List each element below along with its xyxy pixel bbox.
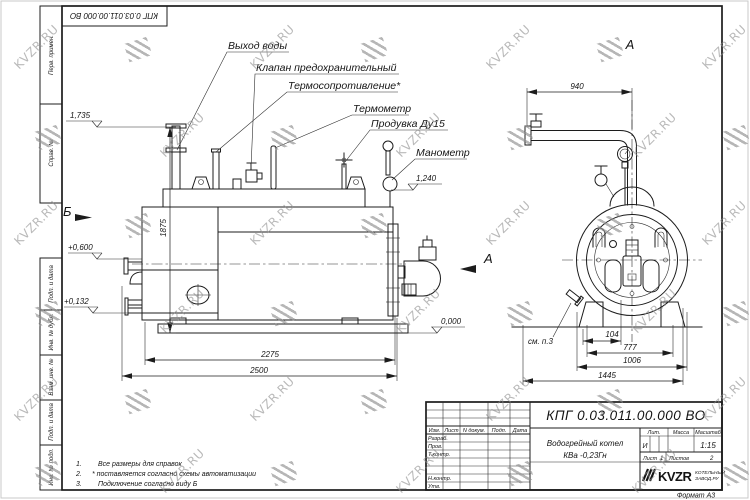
- elev-1240: 1,240: [416, 174, 437, 183]
- callout-thermometer: Термометр: [353, 103, 411, 115]
- lit-label: Лит.: [647, 430, 661, 436]
- dim-2275: 2275: [260, 350, 279, 359]
- elev-0000: 0,000: [441, 317, 462, 326]
- strip-inv-dubl: Инв. № дубл.: [48, 314, 55, 351]
- product-name-1: Водогрейный котел: [547, 439, 624, 448]
- note-ref: см. п.3: [528, 337, 554, 346]
- col-list: Лист: [443, 428, 459, 434]
- note-1-text: Все размеры для справок: [98, 460, 183, 468]
- kvzr-logo-icon: [643, 469, 655, 481]
- side-view-callouts: Выход воды Клапан предохранительный Терм…: [63, 40, 493, 273]
- massa-label: Масса: [673, 430, 689, 436]
- listov-label: Листов: [668, 456, 689, 462]
- strip-perv-primen: Перв. примен.: [49, 35, 55, 75]
- masshtab-value: 1:15: [700, 441, 716, 450]
- front-view-label: А: [625, 37, 635, 52]
- note-3-text: Подключение согласно виду Б: [98, 480, 198, 488]
- callout-manometer: Манометр: [416, 147, 470, 159]
- strip-podp-data-1: Подп. и дата: [49, 265, 55, 303]
- col-podp: Подп.: [492, 428, 507, 434]
- product-name-2: КВа -0,23Гн: [563, 451, 607, 460]
- dim-777: 777: [623, 343, 637, 352]
- note-3-num: 3.: [76, 481, 82, 488]
- list-value: 1: [660, 456, 663, 462]
- notes: 1. Все размеры для справок 2. * поставля…: [75, 460, 256, 488]
- elev-0132: +0,132: [64, 297, 89, 306]
- view-arrow-b-label: Б: [63, 204, 72, 219]
- dim-1445: 1445: [598, 371, 616, 380]
- callout-blowdown: Продувка Ду15: [371, 118, 445, 130]
- side-view: [124, 124, 441, 333]
- elev-0600: +0,600: [68, 243, 93, 252]
- list-label: Лист: [642, 456, 658, 462]
- title-block: Изм. Лист N докум. Подп. Дата Разраб. Пр…: [426, 402, 726, 490]
- listov-value: 2: [709, 456, 714, 462]
- callout-thermal-resistance: Термосопротивление*: [288, 80, 401, 92]
- col-data: Дата: [512, 428, 528, 434]
- dim-1875: 1875: [159, 219, 168, 237]
- format-label: Формат А3: [677, 493, 715, 500]
- logo-sub2: ЗАВОД.РУ: [695, 476, 719, 482]
- callout-water-outlet: Выход воды: [228, 40, 287, 52]
- callout-safety-valve: Клапан предохранительный: [256, 62, 397, 74]
- dim-2500: 2500: [249, 366, 268, 375]
- strip-sprav-no: Справ. №: [48, 139, 55, 167]
- dim-1006: 1006: [623, 356, 641, 365]
- row-tkontr: Т.контр.: [428, 452, 450, 458]
- lit-value: И: [642, 443, 648, 450]
- view-arrow-a-label: А: [483, 251, 493, 266]
- designation-top: КПГ 0.03.011.00.000 ВО: [70, 11, 158, 20]
- row-razrab: Разраб.: [428, 436, 448, 442]
- row-prov: Пров.: [428, 444, 443, 450]
- col-izm: Изм.: [429, 428, 441, 434]
- dim-940: 940: [570, 82, 584, 91]
- title-designation: КПГ 0.03.011.00.000 ВО: [546, 408, 705, 423]
- strip-inv-podl: Инв. № подл.: [48, 448, 55, 485]
- side-view-dimensions: 1,735 +0,600 +0,132 1,240 0,000 1875 227…: [64, 111, 465, 381]
- note-2-text: * поставляется согласно схемы автоматиза…: [92, 471, 256, 478]
- dim-104: 104: [605, 330, 619, 339]
- col-n-dokum: N докум.: [463, 428, 485, 434]
- drawing-sheet: КПГ 0.03.011.00.000 ВО Перв. примен. Спр…: [0, 0, 750, 500]
- strip-vzam-inv: Взам. инв. №: [48, 358, 55, 396]
- row-utv: Утв.: [427, 484, 441, 490]
- logo-text: KVZR: [658, 469, 693, 484]
- row-nkontr: Н.контр.: [428, 476, 451, 482]
- front-view: [512, 100, 702, 342]
- strip-podp-data-2: Подп. и дата: [49, 403, 55, 441]
- masshtab-label: Масштаб: [695, 430, 722, 436]
- note-1-num: 1.: [76, 461, 82, 468]
- drawing-svg: КПГ 0.03.011.00.000 ВО Перв. примен. Спр…: [0, 0, 750, 500]
- note-2-num: 2.: [75, 471, 82, 478]
- elev-1735: 1,735: [70, 111, 91, 120]
- logo-sub1: КОТЕЛЬНЫЙ: [695, 468, 726, 476]
